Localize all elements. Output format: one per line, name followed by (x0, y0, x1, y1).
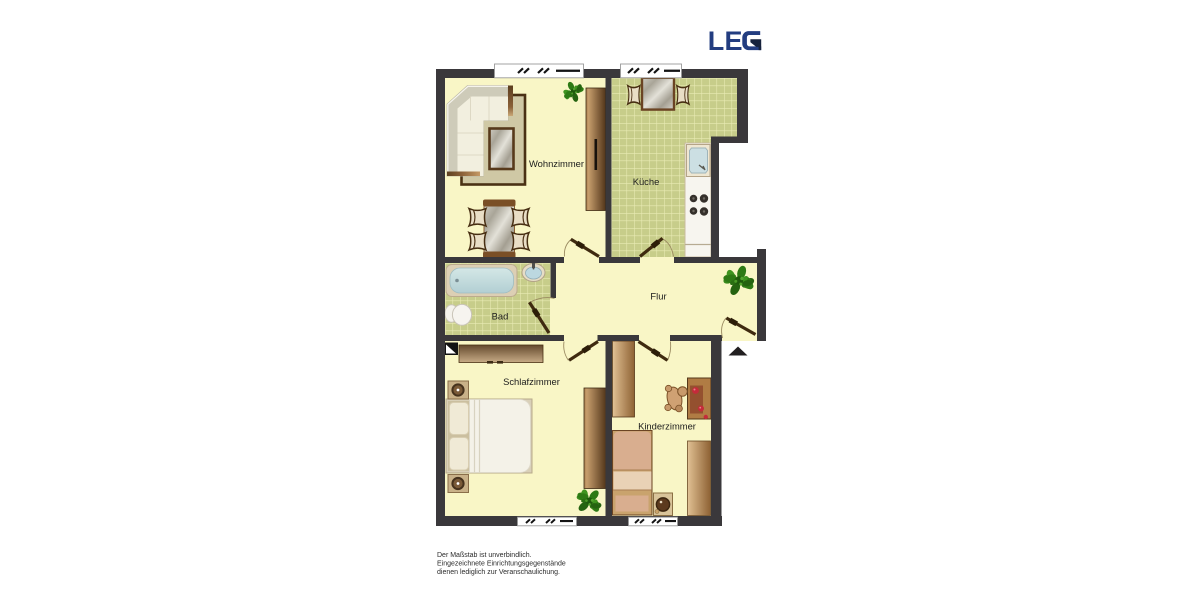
svg-text:dienen lediglich zur Veranscha: dienen lediglich zur Veranschaulichung. (437, 569, 560, 576)
svg-text:LE: LE (708, 26, 743, 56)
svg-text:Bad: Bad (492, 311, 509, 322)
svg-text:Flur: Flur (650, 291, 666, 302)
svg-text:Der Maßstab ist unverbindlich.: Der Maßstab ist unverbindlich. (437, 552, 532, 559)
svg-text:Wohnzimmer: Wohnzimmer (529, 158, 584, 169)
svg-text:Schlafzimmer: Schlafzimmer (503, 376, 560, 387)
svg-text:Kinderzimmer: Kinderzimmer (638, 421, 696, 432)
svg-text:Küche: Küche (633, 176, 660, 187)
svg-text:Eingezeichnete Einrichtungsgeg: Eingezeichnete Einrichtungsgegenstände (437, 561, 566, 568)
